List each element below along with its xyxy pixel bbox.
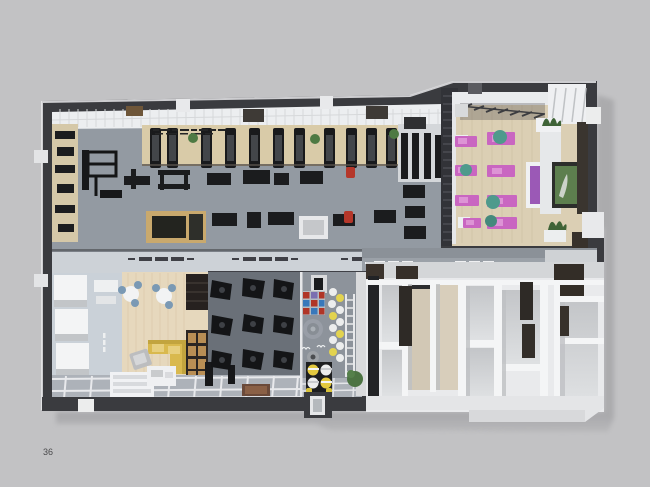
svg-text:36: 36 (43, 447, 53, 457)
